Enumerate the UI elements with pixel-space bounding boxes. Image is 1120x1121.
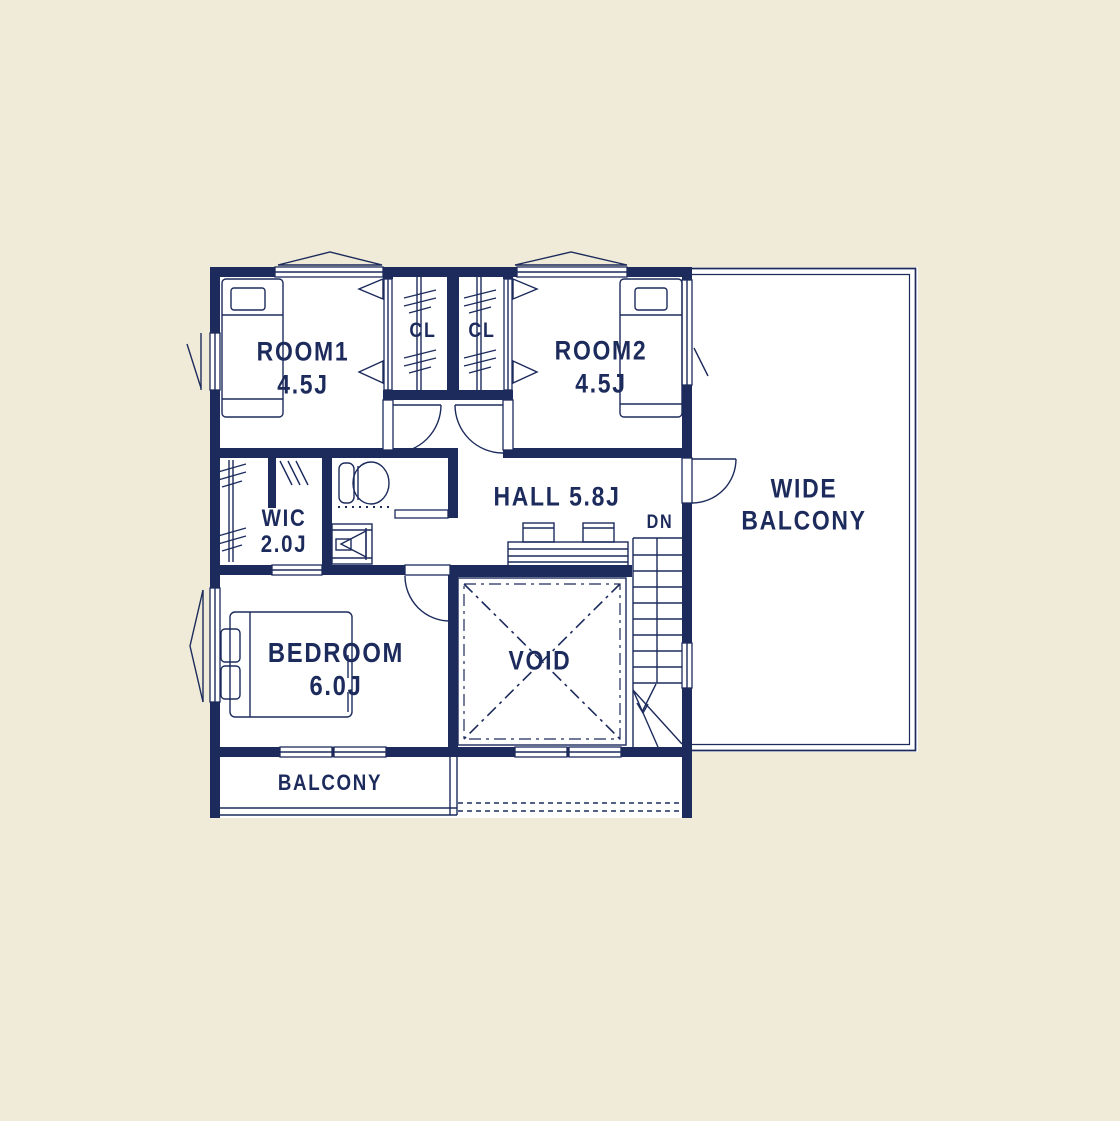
closet-door-track-1 <box>384 279 392 390</box>
awning-mark-room2 <box>515 252 627 265</box>
window-icon-bottom-4 <box>569 747 621 757</box>
floor-plan-drawing <box>0 0 1120 1121</box>
closet-door-track-2 <box>504 279 512 390</box>
door-opening-room2 <box>503 400 513 450</box>
window-icon-bottom-3 <box>515 747 567 757</box>
door-opening-wic <box>272 565 322 575</box>
awning-mark-room1 <box>278 252 382 265</box>
wide-balcony-floor <box>692 267 918 752</box>
floor-plan-page: ROOM1 4.5J CL CL ROOM2 4.5J WIC 2.0J HAL… <box>0 0 1120 1121</box>
window-icon-bottom-2 <box>334 747 386 757</box>
door-opening-toilet <box>395 510 448 518</box>
window-icon-left-room1 <box>210 333 220 390</box>
window-icon-right-room2 <box>682 280 692 385</box>
window-icon-left-bedroom <box>210 588 220 702</box>
door-opening-balcony <box>682 458 692 503</box>
casement-mark-bedroom <box>190 590 203 702</box>
door-opening-bedroom <box>405 565 450 575</box>
window-icon-right-stairs <box>682 643 692 688</box>
wic-partition <box>268 458 276 508</box>
window-icon-top-room1 <box>275 267 383 277</box>
door-opening-room1 <box>383 400 393 450</box>
casement-mark-room1 <box>187 333 201 390</box>
window-icon-top-room2 <box>517 267 627 277</box>
window-icon-bottom-1 <box>280 747 332 757</box>
